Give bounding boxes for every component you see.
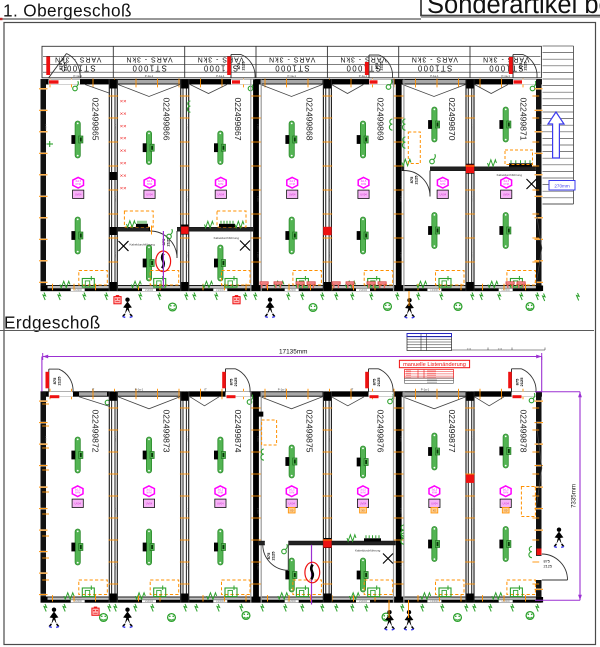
svg-text:1.100: 1.100 <box>256 124 258 130</box>
svg-text:3x1,5: 3x1,5 <box>289 490 295 492</box>
svg-text:022499867: 022499867 <box>233 98 243 141</box>
svg-text:1.100: 1.100 <box>539 124 541 130</box>
svg-text:1.100: 1.100 <box>399 124 401 130</box>
svg-text:1.000: 1.000 <box>399 436 401 442</box>
svg-text:××: ×× <box>120 124 127 130</box>
svg-text:manuelle Listenänderung: manuelle Listenänderung <box>403 362 466 368</box>
svg-text:××: ×× <box>120 186 127 192</box>
svg-text:VARS - 3kN: VARS - 3kN <box>482 55 529 62</box>
svg-text:022499871: 022499871 <box>518 98 528 141</box>
svg-text:022499870: 022499870 <box>447 98 457 141</box>
svg-text:1.100: 1.100 <box>114 124 116 130</box>
svg-text:UV04: UV04 <box>75 193 82 197</box>
svg-text:022499866: 022499866 <box>162 98 172 141</box>
svg-text:UV04: UV04 <box>289 193 296 197</box>
svg-text:3x1,5: 3x1,5 <box>75 490 81 492</box>
svg-text:IT: IT <box>204 388 207 392</box>
svg-text:NYM: NYM <box>440 184 445 186</box>
svg-text:2125: 2125 <box>544 565 552 569</box>
svg-text:NYM: NYM <box>361 184 366 186</box>
svg-text:LS3000: LS3000 <box>216 289 225 292</box>
svg-text:1.100: 1.100 <box>470 252 472 258</box>
svg-text:2125: 2125 <box>233 377 238 387</box>
svg-text:3x1,5: 3x1,5 <box>217 490 223 492</box>
svg-text:Kabeldurchführung: Kabeldurchführung <box>130 243 156 247</box>
svg-text:LS3000: LS3000 <box>145 600 154 603</box>
svg-text:P-1a-1: P-1a-1 <box>501 74 510 78</box>
svg-text:LS3000: LS3000 <box>74 600 83 603</box>
svg-text:2125: 2125 <box>63 61 68 71</box>
svg-text:1.000: 1.000 <box>399 508 401 514</box>
svg-text:022499878: 022499878 <box>518 410 528 453</box>
svg-text:2125: 2125 <box>414 175 419 185</box>
svg-text:Kabeldurchführung: Kabeldurchführung <box>355 549 381 553</box>
svg-text:Kabeldurchführung: Kabeldurchführung <box>497 173 523 177</box>
svg-text:NYM: NYM <box>76 184 81 186</box>
svg-text:VARS - 3kN: VARS - 3kN <box>411 55 458 62</box>
svg-text:NYM: NYM <box>503 492 508 494</box>
svg-text:1.000: 1.000 <box>256 508 258 514</box>
svg-text:P-1a-1: P-1a-1 <box>73 74 82 78</box>
svg-text:1.100: 1.100 <box>399 252 401 258</box>
svg-text:7335mm: 7335mm <box>571 484 578 508</box>
svg-text:X0: X0 <box>361 509 365 513</box>
svg-text:VARS - 3kN: VARS - 3kN <box>125 55 172 62</box>
svg-text:X0: X0 <box>433 509 437 513</box>
svg-text:UV04: UV04 <box>218 193 225 197</box>
svg-text:1.100: 1.100 <box>114 252 116 258</box>
svg-text:1.000: 1.000 <box>114 436 116 442</box>
svg-text:VARS - 3kN: VARS - 3kN <box>268 55 315 62</box>
svg-text:ST1000: ST1000 <box>202 63 238 72</box>
svg-text:NYM: NYM <box>289 492 294 494</box>
svg-text:X0: X0 <box>504 509 508 513</box>
svg-text:1.100: 1.100 <box>328 196 330 202</box>
svg-text:ST1000: ST1000 <box>131 63 167 72</box>
svg-text:UV04: UV04 <box>146 193 153 197</box>
svg-text:3x1,5: 3x1,5 <box>146 490 152 492</box>
svg-text:P-1a-1: P-1a-1 <box>145 74 154 78</box>
svg-text:LS3000: LS3000 <box>359 600 368 603</box>
svg-text:022499873: 022499873 <box>162 410 172 453</box>
svg-text:2125: 2125 <box>241 61 246 71</box>
svg-text:1.000: 1.000 <box>256 564 258 570</box>
svg-text:UV04: UV04 <box>503 193 510 197</box>
svg-text:1.000: 1.000 <box>470 508 472 514</box>
svg-text:UV04: UV04 <box>360 193 367 197</box>
svg-text:022499874: 022499874 <box>233 410 243 453</box>
svg-text:P-1a-1: P-1a-1 <box>135 387 144 391</box>
svg-text:1.100: 1.100 <box>256 252 258 258</box>
svg-text:1.100: 1.100 <box>185 196 187 202</box>
svg-text:UV04: UV04 <box>502 502 509 506</box>
svg-text:LS3000: LS3000 <box>502 600 511 603</box>
svg-text:1.000: 1.000 <box>114 508 116 514</box>
svg-text:3x1,5: 3x1,5 <box>289 181 295 183</box>
svg-text:022499869: 022499869 <box>376 98 386 141</box>
svg-text:UV04: UV04 <box>440 193 447 197</box>
svg-text:IT: IT <box>92 388 95 392</box>
svg-text:××: ×× <box>120 136 127 142</box>
svg-text:1.000: 1.000 <box>256 436 258 442</box>
svg-text:1.000: 1.000 <box>185 564 187 570</box>
svg-text:LS3000: LS3000 <box>145 289 154 292</box>
svg-text:××: ×× <box>120 99 127 105</box>
svg-text:022499865: 022499865 <box>90 98 100 141</box>
svg-text:××: ×× <box>120 111 127 117</box>
svg-text:3x1,5: 3x1,5 <box>75 181 81 183</box>
svg-text:VARS - 3kN: VARS - 3kN <box>339 55 386 62</box>
svg-text:IT: IT <box>351 388 354 392</box>
svg-text:UV04: UV04 <box>146 502 153 506</box>
svg-text:1. Obergeschoß: 1. Obergeschoß <box>3 1 132 21</box>
svg-text:3x1,5: 3x1,5 <box>218 181 224 183</box>
svg-text:022499872: 022499872 <box>90 410 100 453</box>
svg-text:LS3000: LS3000 <box>74 289 83 292</box>
svg-text:UV04: UV04 <box>217 502 224 506</box>
svg-text:NYM: NYM <box>146 492 151 494</box>
svg-text:NYM: NYM <box>504 184 509 186</box>
svg-text:3x1,5: 3x1,5 <box>360 490 366 492</box>
svg-text:Kabeldurchführung: Kabeldurchführung <box>214 236 240 240</box>
svg-text:NYM: NYM <box>147 184 152 186</box>
svg-text:3x1,5: 3x1,5 <box>503 490 509 492</box>
svg-text:UV04: UV04 <box>360 502 367 506</box>
svg-text:LS3000: LS3000 <box>430 289 439 292</box>
svg-text:X0: X0 <box>290 509 294 513</box>
svg-text:3x1,5: 3x1,5 <box>147 181 153 183</box>
svg-text:P-1a-1: P-1a-1 <box>421 387 430 391</box>
svg-text:UV04: UV04 <box>431 502 438 506</box>
svg-text:1.000: 1.000 <box>399 564 401 570</box>
svg-text:022499875: 022499875 <box>304 410 314 453</box>
svg-text:UV04: UV04 <box>288 502 295 506</box>
svg-text:××: ×× <box>120 173 127 179</box>
svg-text:022499868: 022499868 <box>304 98 314 141</box>
svg-text:VARS - 3kN: VARS - 3kN <box>197 55 244 62</box>
svg-text:2125: 2125 <box>376 377 381 387</box>
svg-text:××: ×× <box>120 149 127 155</box>
svg-text:1.000: 1.000 <box>328 564 330 570</box>
svg-text:1.000: 1.000 <box>470 564 472 570</box>
svg-text:1.000: 1.000 <box>44 436 46 442</box>
svg-text:1.100: 1.100 <box>470 196 472 202</box>
svg-text:3x1,5: 3x1,5 <box>432 490 438 492</box>
svg-text:1.000: 1.000 <box>470 436 472 442</box>
svg-text:1.000: 1.000 <box>114 564 116 570</box>
svg-text:0000000000: 0000000000 <box>427 382 437 384</box>
svg-text:LS3000: LS3000 <box>430 600 439 603</box>
svg-text:P-1a-1: P-1a-1 <box>278 387 287 391</box>
svg-text:1.000: 1.000 <box>185 436 187 442</box>
svg-text:3x1,5: 3x1,5 <box>440 181 446 183</box>
svg-text:LS3000: LS3000 <box>502 289 511 292</box>
svg-text:17135mm: 17135mm <box>279 348 307 355</box>
svg-text:1.100: 1.100 <box>328 124 330 130</box>
svg-text:022499877: 022499877 <box>447 410 457 453</box>
svg-text:LS3000: LS3000 <box>359 289 368 292</box>
svg-text:875: 875 <box>544 560 550 564</box>
svg-text:3x1,5: 3x1,5 <box>361 181 367 183</box>
svg-text:UV04: UV04 <box>74 502 81 506</box>
svg-text:Erdgeschoß: Erdgeschoß <box>4 313 101 333</box>
svg-text:1.000: 1.000 <box>328 508 330 514</box>
svg-text:NYM: NYM <box>75 492 80 494</box>
svg-text:1.000: 1.000 <box>328 436 330 442</box>
svg-text:LS3000: LS3000 <box>216 600 225 603</box>
svg-text:2125: 2125 <box>523 61 528 71</box>
svg-text:270mm: 270mm <box>554 184 569 189</box>
svg-text:1.100: 1.100 <box>256 196 258 202</box>
svg-text:××: ×× <box>120 161 127 167</box>
svg-text:ST1000: ST1000 <box>274 63 310 72</box>
svg-text:1.100: 1.100 <box>185 252 187 258</box>
svg-text:1.100: 1.100 <box>44 124 46 130</box>
svg-text:022499876: 022499876 <box>376 410 386 453</box>
svg-text:NYM: NYM <box>360 492 365 494</box>
svg-text:NYM: NYM <box>218 492 223 494</box>
svg-text:1.100: 1.100 <box>328 252 330 258</box>
svg-text:1.100: 1.100 <box>185 124 187 130</box>
svg-text:NYM: NYM <box>218 184 223 186</box>
svg-text:P-1a-1: P-1a-1 <box>216 74 225 78</box>
svg-text:2125: 2125 <box>519 377 524 387</box>
svg-text:1.100: 1.100 <box>399 196 401 202</box>
svg-text:P-1a-1: P-1a-1 <box>430 74 439 78</box>
svg-text:2125: 2125 <box>379 61 384 71</box>
svg-text:NYM: NYM <box>290 184 295 186</box>
svg-text:1.100: 1.100 <box>114 196 116 202</box>
svg-text:1.000: 1.000 <box>185 508 187 514</box>
svg-text:NYM: NYM <box>432 492 437 494</box>
svg-text:ST1000: ST1000 <box>417 63 453 72</box>
svg-text:2125: 2125 <box>271 551 276 561</box>
svg-text:P-1a-1: P-1a-1 <box>287 74 296 78</box>
svg-text:1.100: 1.100 <box>470 124 472 130</box>
svg-text:2125: 2125 <box>57 376 62 386</box>
svg-text:3x1,5: 3x1,5 <box>503 181 509 183</box>
